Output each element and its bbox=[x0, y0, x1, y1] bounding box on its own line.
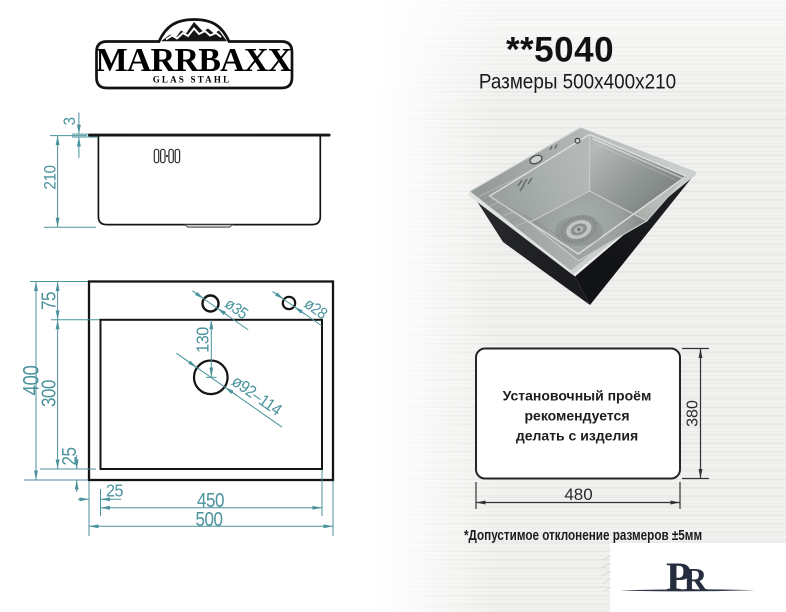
svg-text:480: 480 bbox=[564, 485, 592, 504]
svg-text:380: 380 bbox=[685, 400, 702, 427]
svg-text:3: 3 bbox=[60, 117, 79, 126]
svg-text:R: R bbox=[684, 563, 709, 599]
svg-text:MARRBAXX: MARRBAXX bbox=[96, 42, 293, 79]
svg-text:300: 300 bbox=[37, 380, 60, 407]
svg-text:500: 500 bbox=[195, 508, 222, 531]
svg-text:Установочный проём: Установочный проём bbox=[503, 388, 652, 404]
svg-text:210: 210 bbox=[41, 165, 60, 190]
svg-text:75: 75 bbox=[37, 292, 60, 310]
svg-text:GLAS STAHL: GLAS STAHL bbox=[153, 75, 232, 85]
svg-text:**5040: **5040 bbox=[506, 31, 614, 70]
svg-text:25: 25 bbox=[58, 447, 81, 465]
svg-text:делать с изделия: делать с изделия bbox=[516, 428, 638, 444]
svg-text:25: 25 bbox=[106, 481, 123, 501]
svg-text:130: 130 bbox=[193, 327, 213, 353]
svg-text:*Допустимое отклонение размеро: *Допустимое отклонение размеров ±5мм bbox=[464, 527, 702, 544]
svg-text:Размеры 500x400x210: Размеры 500x400x210 bbox=[479, 71, 676, 94]
svg-text:рекомендуется: рекомендуется bbox=[524, 408, 629, 424]
